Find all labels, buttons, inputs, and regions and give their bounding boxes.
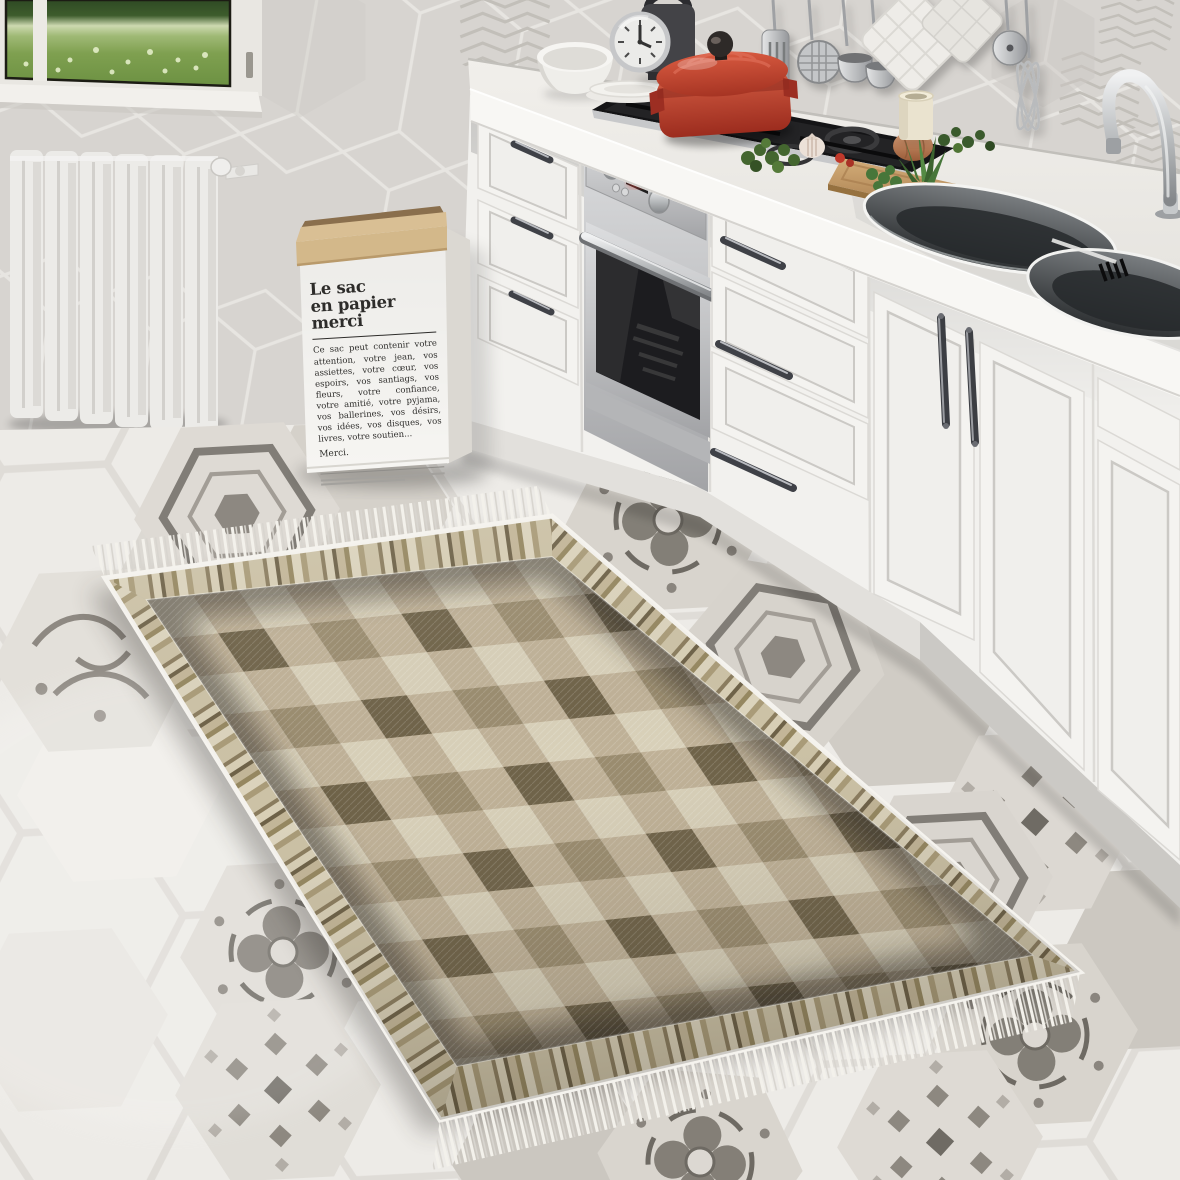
- paper-bag-body: Ce sac peut contenir votre attention, vo…: [313, 339, 443, 446]
- pizza-cutter-icon: [993, 31, 1027, 65]
- radish: [846, 159, 854, 167]
- paper-bag-closing: Merci.: [319, 442, 443, 459]
- mesh-skimmer-icon: [798, 41, 840, 83]
- radish: [835, 153, 845, 163]
- drawer-bank-left: [478, 122, 578, 385]
- oven-button: [622, 188, 629, 196]
- kitchen-product-photo: Le sac en papier merci Ce sac peut conte…: [0, 0, 1180, 1180]
- scene-canvas: [0, 0, 1180, 1180]
- oven-button: [613, 184, 620, 192]
- window-mullion: [33, 0, 47, 81]
- paper-bag-title: Le sac en papier merci: [309, 274, 436, 333]
- window-hinge: [246, 52, 253, 78]
- cream-jug: [897, 91, 935, 145]
- window: [0, 0, 262, 118]
- paper-bag-text: Le sac en papier merci Ce sac peut conte…: [309, 274, 445, 488]
- faucet-spout: [1106, 138, 1121, 154]
- bag-title-line2: en papier merci: [310, 291, 436, 333]
